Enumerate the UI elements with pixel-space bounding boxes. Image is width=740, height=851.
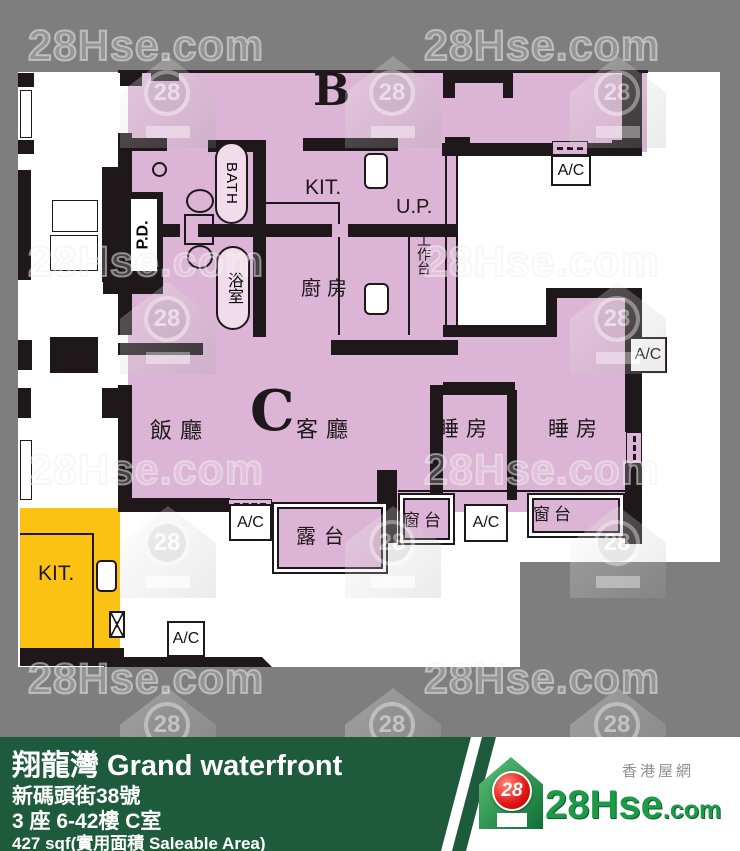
watermark-house-logo: 28 — [120, 282, 216, 374]
door-gap — [332, 224, 348, 237]
wall — [503, 72, 513, 98]
room-label-kit: KIT. — [305, 176, 341, 200]
watermark-house-logo: 28 — [570, 282, 666, 374]
house-step — [146, 126, 190, 138]
watermark-house-logo: 28 — [120, 56, 216, 148]
lobby-box — [20, 90, 32, 138]
watermark-house-logo: 28 — [570, 506, 666, 598]
wall — [453, 72, 509, 83]
watermark-house-logo: 28 — [570, 56, 666, 148]
room-label-dining: 飯廳 — [150, 413, 210, 445]
watermark-badge: 28 — [144, 296, 190, 342]
room-label-bedroom2: 睡房 — [548, 413, 604, 443]
room-label-kitchen: 廚房 — [301, 272, 353, 301]
house-step — [596, 126, 640, 138]
counter-line — [266, 202, 340, 204]
room-label-kit-yellow: KIT. — [38, 562, 74, 586]
house-step — [371, 576, 415, 588]
logo-brand: 28Hse.com — [545, 785, 721, 825]
watermark-house-logo: 28 — [345, 56, 441, 148]
house-step — [146, 352, 190, 364]
watermark-text: 28Hse.com — [28, 238, 264, 287]
ac-label: A/C — [558, 162, 585, 180]
house-step — [596, 576, 640, 588]
ac-box: A/C — [551, 155, 591, 186]
estate-name: 翔龍灣 Grand waterfront — [12, 742, 342, 784]
ac-label: A/C — [473, 514, 500, 532]
ac-box: A/C — [229, 504, 272, 541]
wall — [443, 382, 515, 395]
bath-label: BATH — [223, 162, 240, 205]
watermark-badge: 28 — [144, 520, 190, 566]
floor-plan-page: A/C A/C A/C A/C A/C BATH 浴室 P.D. B C KIT… — [0, 0, 740, 851]
watermark-badge: 28 — [144, 70, 190, 116]
wall — [443, 325, 553, 337]
ac-label: A/C — [173, 630, 200, 648]
logo-tagline: 香港屋網 — [622, 760, 694, 781]
wall — [331, 340, 458, 355]
yellow-unit-door — [96, 560, 117, 592]
room-label-bedroom1: 睡房 — [438, 413, 494, 443]
house-step — [146, 576, 190, 588]
basin-fixture — [152, 162, 167, 177]
watermark-house-logo: 28 — [120, 506, 216, 598]
logo-brand-tld: .com — [663, 798, 721, 823]
estate-area: 427 sqf(實用面積 Saleable Area) — [12, 829, 266, 851]
yellow-unit-divider — [20, 533, 93, 535]
logo-house-step — [497, 813, 527, 827]
house-step — [596, 352, 640, 364]
logo-brand-name: 28Hse — [545, 785, 663, 825]
watermark-badge: 28 — [369, 70, 415, 116]
watermark-badge: 28 — [369, 520, 415, 566]
ac-label: A/C — [237, 514, 264, 532]
wall — [18, 340, 32, 370]
watermark-badge: 28 — [594, 70, 640, 116]
watermark-badge: 28 — [594, 296, 640, 342]
logo-28-badge: 28 — [492, 771, 532, 811]
basin-fixture — [186, 189, 214, 213]
ac-box: A/C — [464, 504, 508, 542]
bath-pill: BATH — [215, 142, 248, 224]
watermark-text: 28Hse.com — [28, 446, 264, 495]
room-label-balcony: 露台 — [296, 520, 352, 549]
watermark-badge: 28 — [594, 520, 640, 566]
lobby-box — [52, 200, 98, 232]
watermark-text: 28Hse.com — [424, 238, 660, 287]
house-step — [371, 126, 415, 138]
watermark-text: 28Hse.com — [424, 446, 660, 495]
ac-box: A/C — [167, 621, 205, 657]
room-label-living: 客廳 — [296, 412, 356, 444]
yellow-unit-window — [109, 611, 125, 638]
wall — [50, 337, 98, 373]
room-label-baywindow2: 窗台 — [533, 500, 575, 525]
sink-fixture — [364, 153, 388, 189]
unit-letter-c: C — [250, 378, 295, 444]
wall — [18, 73, 34, 87]
watermark-house-logo: 28 — [345, 506, 441, 598]
wall — [18, 140, 34, 154]
sink-fixture — [364, 283, 389, 315]
wall — [445, 137, 470, 153]
room-label-up: U.P. — [396, 196, 432, 219]
counter-line — [338, 202, 340, 335]
yellow-unit-divider-v — [92, 533, 94, 648]
wall — [18, 388, 31, 418]
stair-line — [408, 235, 410, 335]
